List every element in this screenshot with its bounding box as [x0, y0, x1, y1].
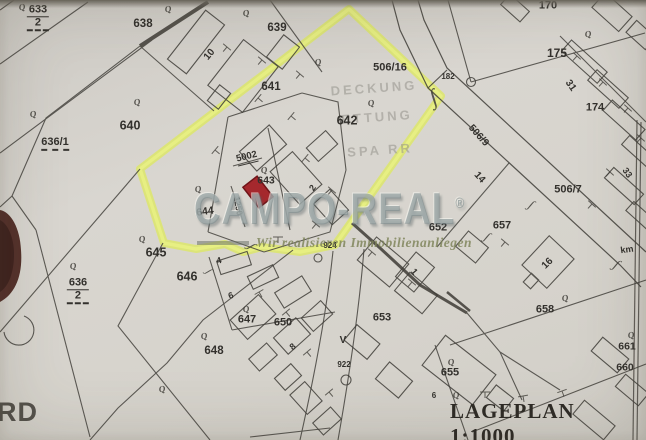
tree-symbol: Q	[584, 29, 592, 40]
tree-symbol: Q	[242, 8, 250, 19]
watermark-brand: CAMPO-REAL®	[194, 185, 465, 235]
tree-symbol: Q	[158, 384, 166, 395]
parcel-label-655: 655	[441, 367, 459, 378]
point-label-922: 922	[337, 361, 350, 369]
cadastral-map-photo: ∫ ∫ ∫ ∫ ∫ ∫ 6332638639640636/1641506/166…	[0, 0, 646, 440]
parcel-label-647: 647	[238, 314, 256, 325]
tree-symbol: Q	[18, 2, 26, 13]
parcel-label-638: 638	[133, 19, 152, 31]
point-label-182: 182	[441, 73, 454, 81]
parcel-label-636/1: 636/1	[41, 137, 69, 151]
parcel-label-640: 640	[120, 120, 141, 133]
parcel-label-639: 639	[267, 23, 286, 35]
corner-text: RD	[0, 397, 38, 428]
plan-title: LAGEPLAN 1:1000	[450, 399, 646, 440]
building-number-6: 6	[432, 392, 436, 400]
parcel-label-660: 660	[616, 363, 634, 374]
parcel-label-642: 642	[337, 115, 358, 128]
watermark-dash	[197, 241, 249, 245]
tree-symbol: Q	[133, 97, 141, 108]
tree-symbol: Q	[561, 293, 569, 304]
tree-symbol: Q	[138, 234, 146, 245]
parcel-label-633/2: 6332	[27, 4, 49, 31]
tree-symbol: Q	[69, 261, 77, 272]
parcel-label-648: 648	[204, 346, 223, 358]
parcel-label-506/16: 506/16	[373, 62, 407, 73]
tree-symbol: Q	[627, 330, 635, 341]
point-label-km: km	[620, 245, 634, 256]
tree-symbol: Q	[200, 331, 208, 342]
parcel-label-646: 646	[177, 271, 198, 284]
parcel-label-170: 170	[539, 0, 557, 11]
svg-text:∫: ∫	[609, 257, 623, 272]
parcel-label-653: 653	[373, 312, 391, 323]
watermark-tagline: Wir realisieren Immobilienanliegen	[256, 235, 472, 251]
parcel-label-175: 175	[547, 47, 567, 59]
parcel-label-657: 657	[493, 220, 511, 231]
tree-symbol: Q	[314, 57, 322, 68]
registered-mark: ®	[455, 195, 465, 212]
parcel-label-650: 650	[274, 317, 292, 328]
parcel-label-661: 661	[618, 342, 636, 353]
parcel-label-658: 658	[536, 304, 554, 315]
ink-blob	[0, 210, 21, 302]
parcel-label-636/2: 6362	[67, 277, 89, 304]
tree-symbol: Q	[367, 98, 375, 109]
parcel-label-641: 641	[261, 82, 280, 94]
watermark-brand-text: CAMPO-REAL	[194, 185, 455, 234]
parcel-label-174: 174	[586, 102, 604, 113]
point-label-V: V	[340, 336, 347, 346]
tree-symbol: Q	[29, 109, 37, 120]
tree-symbol: Q	[164, 4, 172, 15]
parcel-label-645: 645	[146, 247, 167, 260]
parcel-label-506/7: 506/7	[554, 184, 582, 195]
svg-text:∫: ∫	[524, 197, 539, 213]
